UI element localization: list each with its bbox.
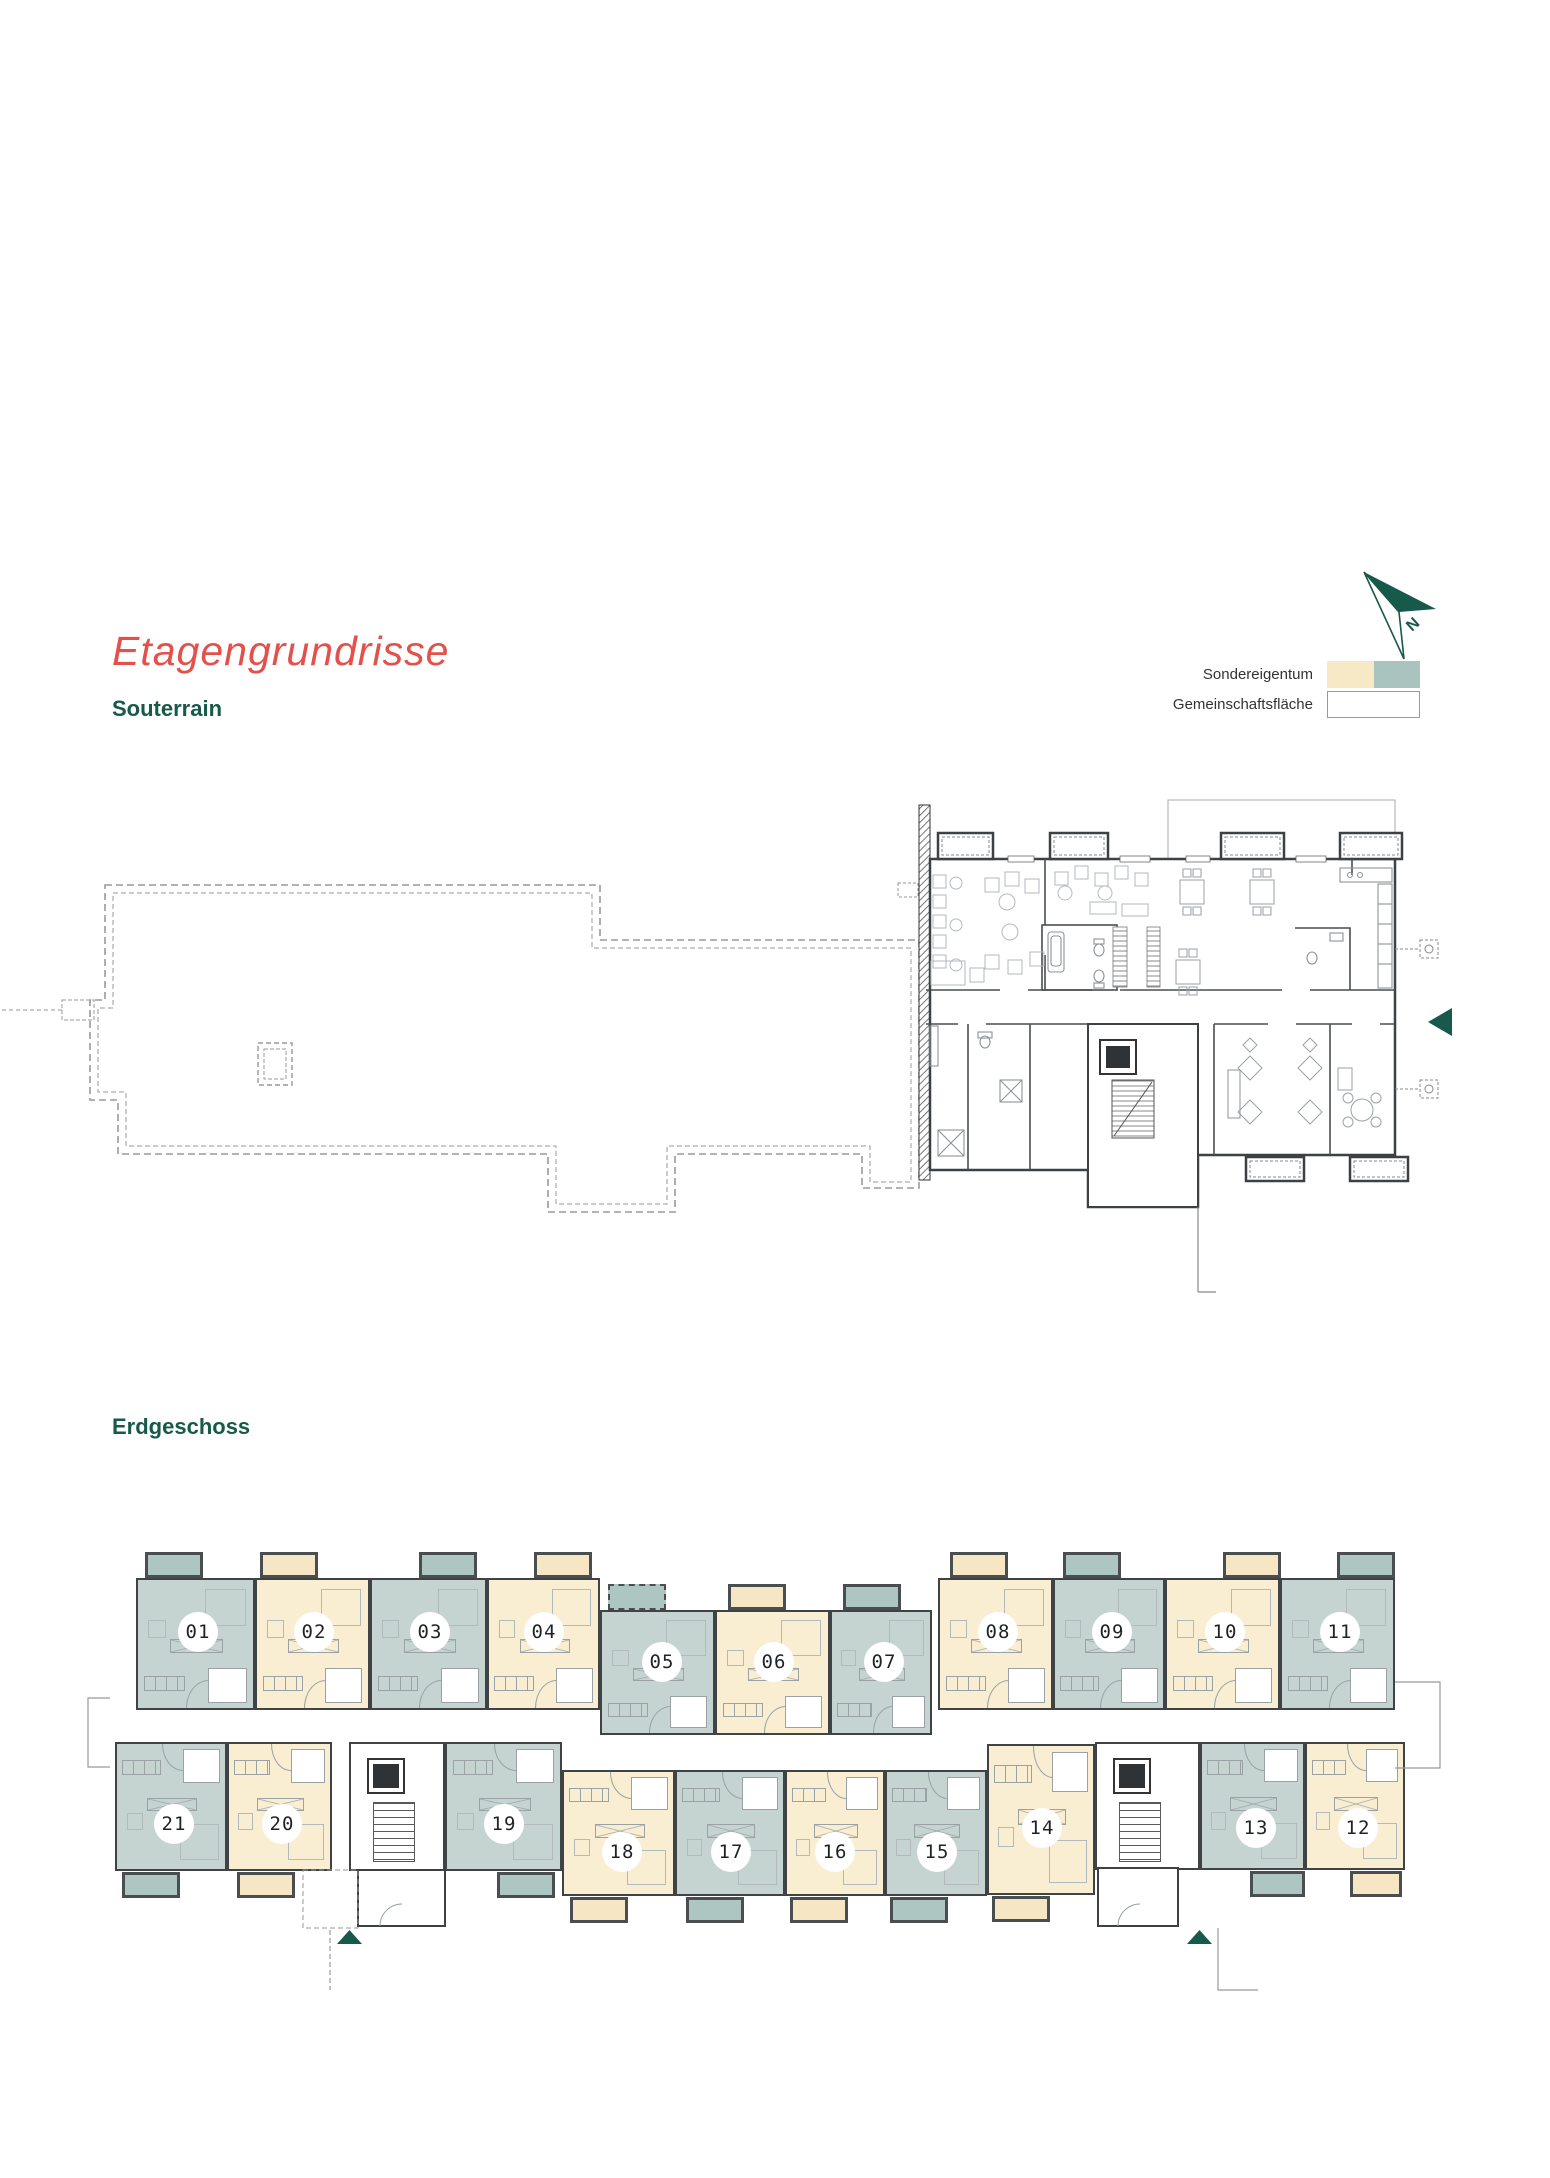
erdgeschoss-extras xyxy=(0,1540,1550,2010)
entrance-triangle-icon xyxy=(337,1930,362,1944)
site-boundary-line xyxy=(1218,1928,1258,1990)
floor-plan-sheet: Etagengrundrisse Souterrain Erdgeschoss … xyxy=(0,0,1550,2178)
terrace-outline-left xyxy=(88,1698,110,1767)
terrace-outline-right xyxy=(1395,1682,1440,1768)
entrance-triangle-icon xyxy=(1187,1930,1212,1944)
entrance-vestibules xyxy=(303,1868,1178,1928)
